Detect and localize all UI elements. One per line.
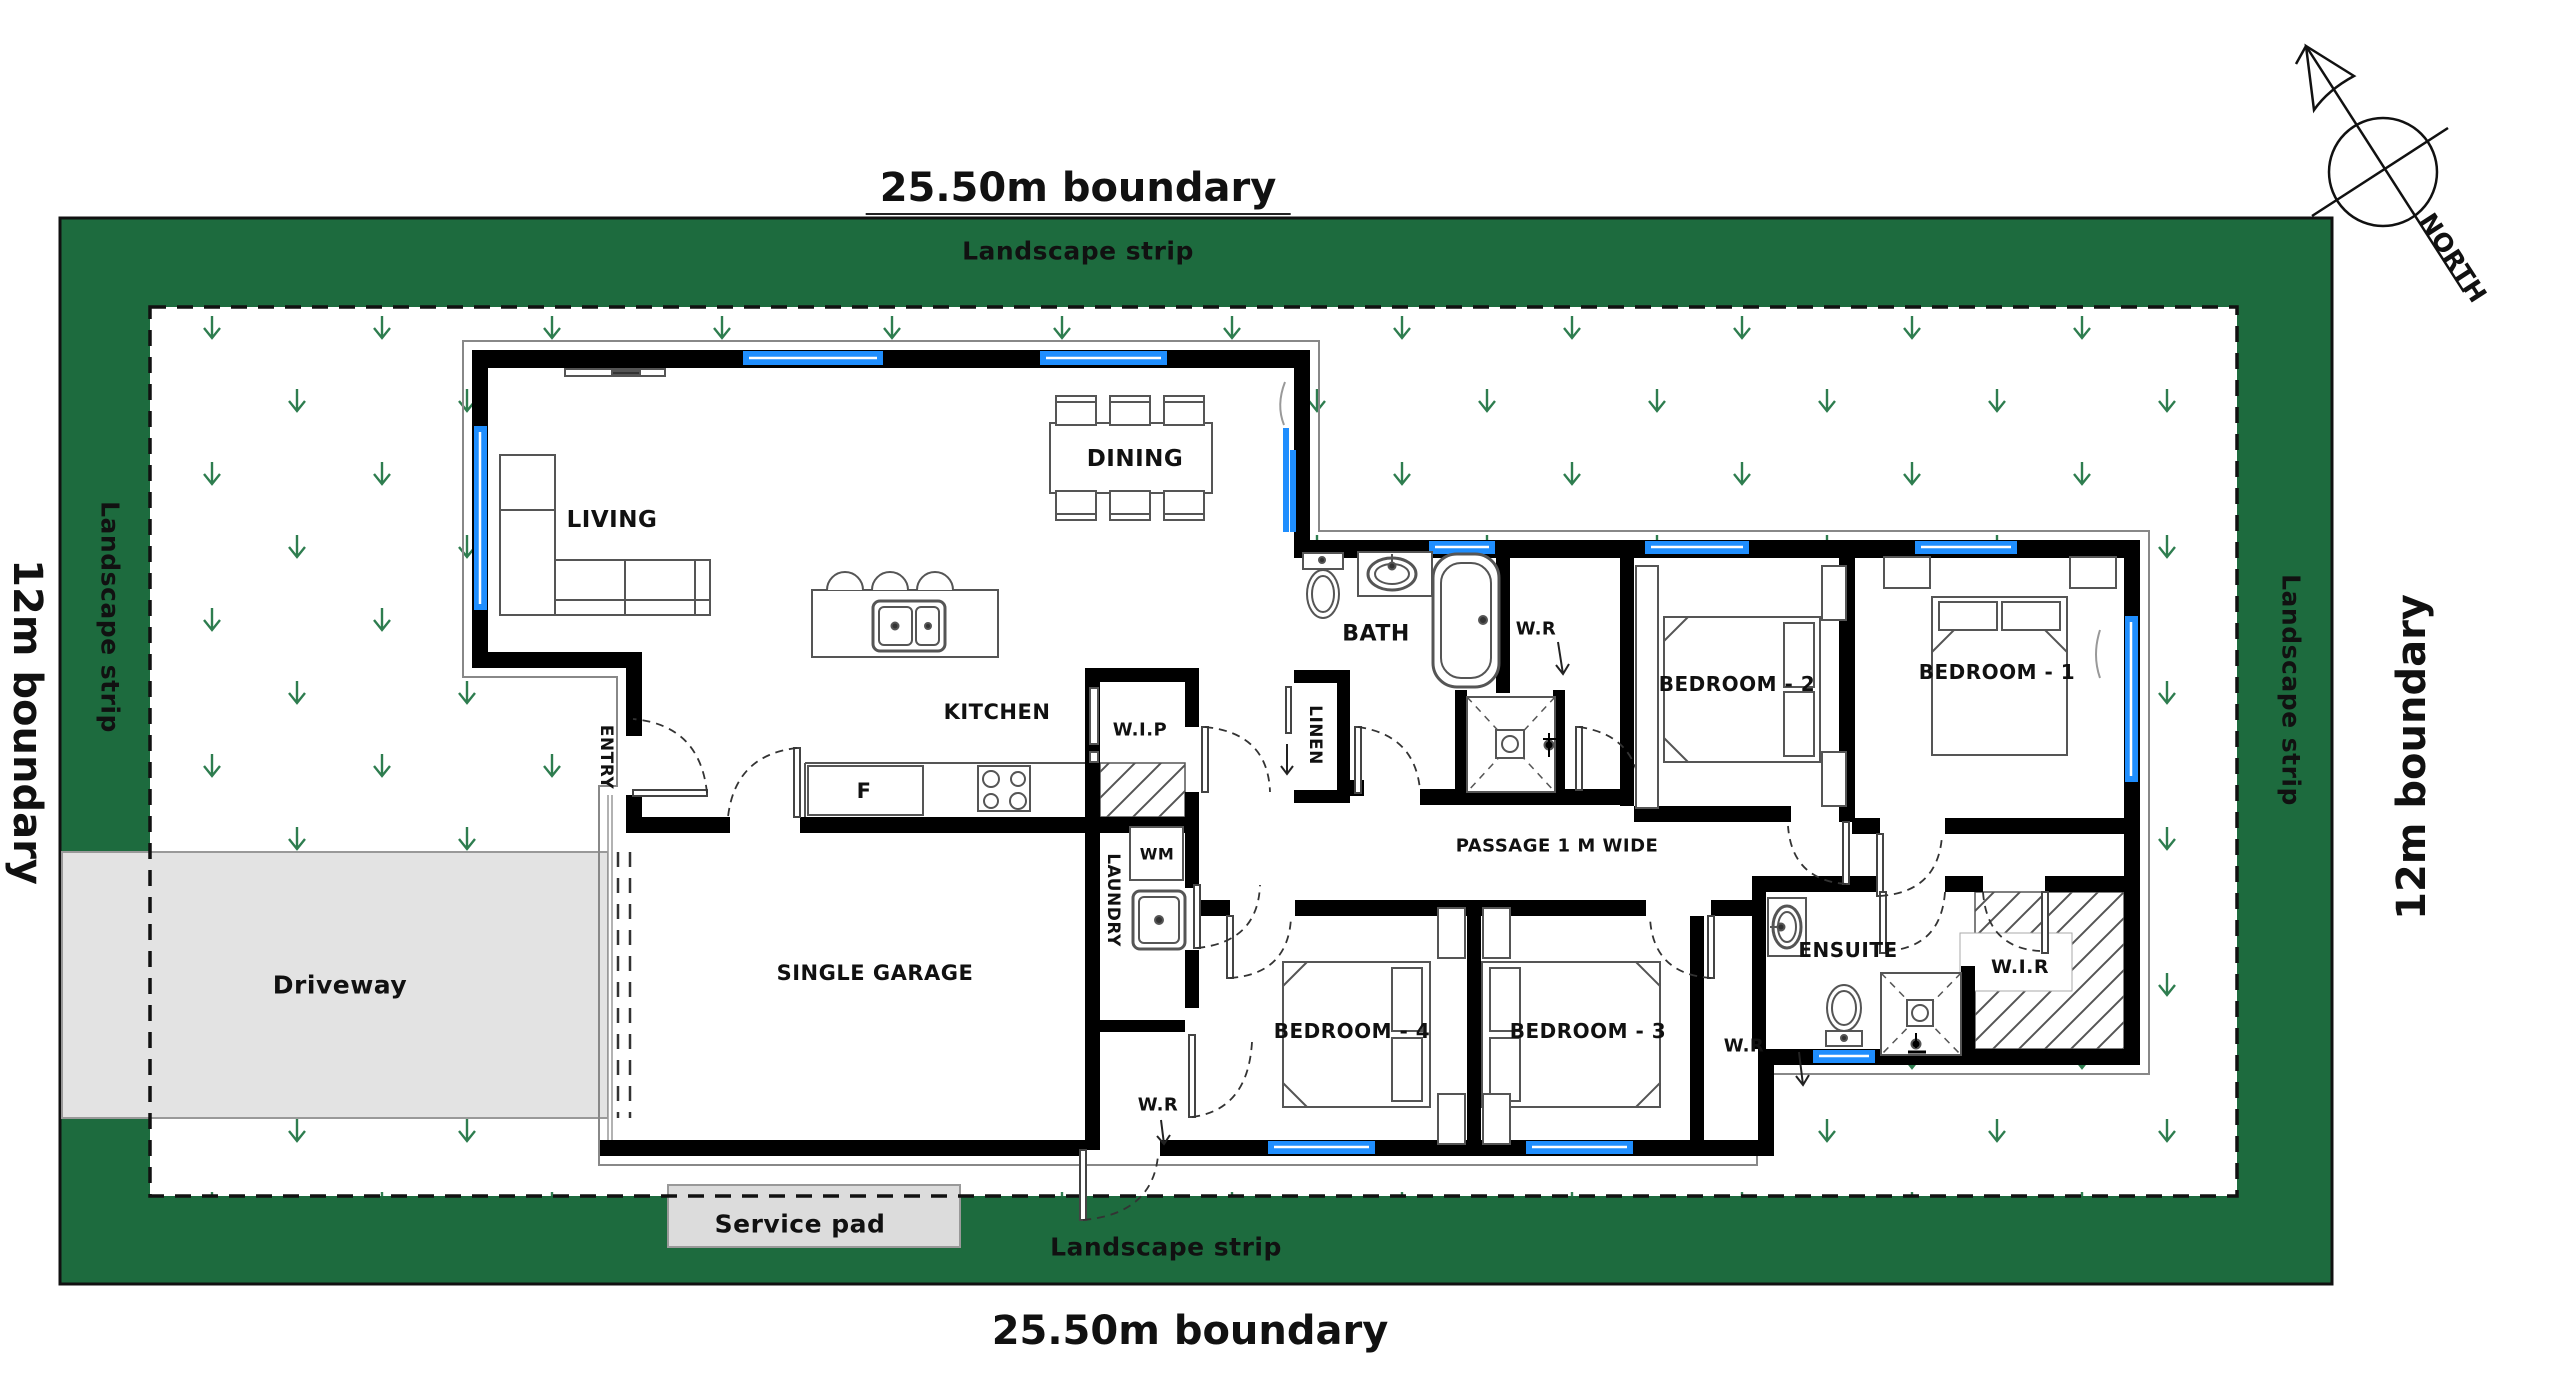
dining-table — [1050, 396, 1212, 520]
fridge — [808, 766, 923, 815]
washing-machine — [1130, 827, 1183, 880]
bath-vanity — [1358, 552, 1432, 596]
site-plan: 25.50m boundaryLandscape stripLandscape … — [0, 0, 2560, 1373]
tv-unit — [565, 369, 665, 376]
entry-door-leaf — [633, 790, 707, 796]
wardrobe — [1636, 566, 1658, 808]
shower-icon — [1467, 697, 1556, 792]
laundry-tub — [1133, 891, 1185, 949]
toilet-icon — [1303, 553, 1343, 618]
bathtub-icon — [1433, 554, 1499, 687]
ensuite-vanity — [1768, 898, 1806, 956]
wir-label-chip — [1960, 933, 2072, 991]
driveway-area — [62, 852, 608, 1118]
ensuite-shower — [1881, 973, 1961, 1055]
wip-hatch — [1100, 763, 1185, 817]
plan-drawing — [0, 0, 2560, 1373]
ensuite-toilet — [1826, 985, 1862, 1046]
